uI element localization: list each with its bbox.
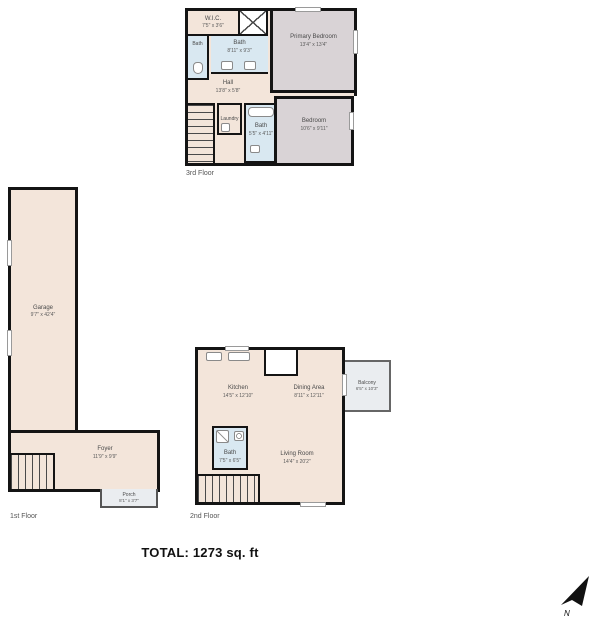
total-label: TOTAL:: [141, 545, 189, 560]
stairs-hatch: [198, 474, 260, 502]
room-name: Primary Bedroom: [290, 34, 337, 42]
room-label-dining: Dining Area 8'11" x 12'11": [278, 382, 340, 402]
room-name: Living Room: [280, 451, 313, 459]
room-label-balcony: Balcony 6'5" x 10'3": [345, 362, 389, 410]
window-icon: [7, 240, 12, 266]
room-label-kitchen: Kitchen 14'5" x 12'10": [202, 382, 274, 402]
north-arrow-icon: [556, 573, 594, 609]
room-name: Bath: [255, 123, 267, 131]
room-name: Hall: [223, 80, 233, 88]
room-bedroom: Bedroom 10'6" x 9'11": [274, 96, 354, 163]
room-name: Kitchen: [228, 385, 248, 393]
sink-icon: [244, 61, 256, 70]
first-floor-lower: Foyer 11'9" x 9'9": [8, 430, 160, 492]
sink-icon: [250, 145, 260, 153]
room-bath-main: Bath 8'11" x 9'3": [211, 36, 268, 74]
bathtub-icon: [248, 107, 274, 117]
room-wic: W.I.C. 7'5" x 3'6": [188, 11, 240, 36]
compass-n-label: N: [564, 609, 570, 618]
room-dims: 10'6" x 9'11": [300, 126, 327, 132]
room-dims: 8'11" x 9'3": [227, 48, 251, 54]
room-label-living: Living Room 14'4" x 20'2": [254, 448, 340, 468]
room-laundry: Laundry: [217, 103, 242, 135]
room-dims: 13'4" x 13'4": [300, 42, 327, 48]
room-name: Foyer: [97, 446, 112, 454]
room-dims: 8'11" x 12'11": [294, 393, 323, 399]
room-name: Garage: [33, 305, 53, 313]
room-label-bath2: Bath 5'5" x 4'11": [246, 121, 276, 139]
room-primary-bedroom: Primary Bedroom 13'4" x 13'4": [270, 11, 354, 93]
room-dims: 14'4" x 20'2": [283, 459, 310, 465]
first-floor-garage: Garage 9'7" x 42'4": [8, 187, 78, 433]
room-name: Bedroom: [302, 118, 326, 126]
window-icon: [225, 346, 249, 351]
footprint-notch: [354, 96, 358, 166]
third-floor-plan: W.I.C. 7'5" x 3'6" Bath Bath 8'11" x 9'3…: [185, 8, 357, 166]
porch: Porch 8'1" x 3'7": [100, 489, 158, 508]
first-floor-label: 1st Floor: [10, 513, 37, 520]
room-dims: 8'1" x 3'7": [119, 498, 139, 504]
stairs-hatch: [188, 103, 215, 163]
stairwell-hatch: [240, 11, 268, 36]
room-dims: 14'5" x 12'10": [223, 393, 253, 399]
room-label-foyer: Foyer 11'9" x 9'9": [55, 441, 155, 465]
room-label-laundry: Laundry: [219, 105, 240, 133]
room-bath-2f: Bath 7'5" x 6'5": [212, 426, 248, 470]
room-label-porch: Porch 8'1" x 3'7": [102, 489, 156, 506]
shower-icon: [216, 430, 229, 443]
window-icon: [353, 30, 358, 54]
room-dims: 11'9" x 9'9": [93, 454, 117, 460]
room-dims: 9'7" x 42'4": [31, 312, 56, 318]
room-label-bedroom: Bedroom 10'6" x 9'11": [277, 115, 351, 135]
room-dims: 7'5" x 3'6": [202, 23, 224, 29]
balcony: Balcony 6'5" x 10'3": [343, 360, 391, 412]
total-value: 1273 sq. ft: [193, 545, 259, 560]
kitchen-sink-icon: [206, 352, 222, 361]
room-name: Laundry: [220, 116, 238, 122]
room-dims: 7'5" x 6'5": [219, 458, 241, 464]
window-icon: [349, 112, 354, 130]
room-dims: 6'5" x 10'3": [356, 386, 378, 392]
room-bath-small: Bath: [188, 36, 209, 80]
compass: N: [556, 573, 594, 621]
floor-plan-page: W.I.C. 7'5" x 3'6" Bath Bath 8'11" x 9'3…: [0, 0, 600, 624]
stairs-hatch: [11, 453, 55, 489]
room-label-wic: W.I.C. 7'5" x 3'6": [188, 11, 238, 34]
room-dims: 13'8" x 5'8": [216, 88, 241, 94]
room-label-bath-2f: Bath 7'5" x 6'5": [214, 448, 246, 466]
room-name: Bath: [224, 450, 236, 458]
total-area: TOTAL: 1273 sq. ft: [95, 545, 305, 560]
window-icon: [300, 502, 326, 507]
stove-icon: [228, 352, 250, 361]
sink-icon: [221, 61, 233, 70]
room-label-hall: Hall 13'8" x 5'8": [188, 75, 268, 99]
room-label-garage: Garage 9'7" x 42'4": [11, 190, 75, 433]
room-name: Bath: [192, 41, 202, 47]
toilet-icon: [193, 62, 203, 74]
room-label-bath-main: Bath 8'11" x 9'3": [211, 38, 268, 56]
sink-icon: [234, 431, 244, 441]
window-icon: [7, 330, 12, 356]
room-name: W.I.C.: [205, 16, 221, 24]
third-floor-label: 3rd Floor: [186, 170, 214, 177]
room-bath2: Bath 5'5" x 4'11": [244, 103, 278, 163]
room-label-primary-bedroom: Primary Bedroom 13'4" x 13'4": [273, 31, 354, 51]
room-dims: 5'5" x 4'11": [249, 131, 273, 137]
room-name: Dining Area: [293, 385, 324, 393]
second-floor-label: 2nd Floor: [190, 513, 220, 520]
room-label-bath-small: Bath: [188, 38, 207, 50]
stair-opening: [264, 350, 298, 376]
balcony-door-icon: [342, 374, 347, 396]
window-icon: [295, 7, 321, 12]
room-name: Bath: [233, 40, 245, 48]
second-floor-plan: Kitchen 14'5" x 12'10" Dining Area 8'11"…: [195, 347, 345, 505]
